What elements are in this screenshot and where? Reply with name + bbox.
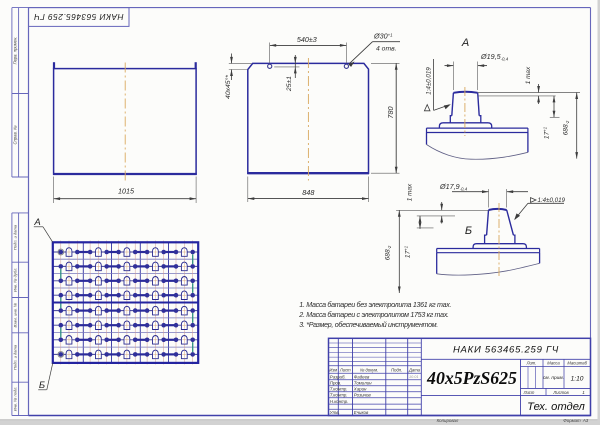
svg-text:А: А [461, 37, 469, 49]
svg-text:Взам. инв. №: Взам. инв. № [13, 302, 18, 327]
svg-text:Харин: Харин [353, 387, 367, 392]
svg-text:см. прим.: см. прим. [543, 376, 564, 381]
svg-text:1: 1 [582, 390, 585, 395]
svg-text:40х45°*: 40х45°* [224, 75, 232, 99]
svg-text:Подп.: Подп. [391, 368, 402, 373]
svg-text:Лист: Лист [523, 390, 535, 395]
svg-text:Изм: Изм [329, 368, 337, 373]
svg-text:Т.контр.: Т.контр. [330, 393, 348, 398]
svg-text:Лит.: Лит. [526, 361, 537, 366]
svg-text:3. *Размер, обеспечиваемый инс: 3. *Размер, обеспечиваемый инструментом. [299, 321, 438, 329]
svg-text:Перв. примен.: Перв. примен. [13, 37, 18, 65]
svg-text:848: 848 [302, 188, 315, 197]
svg-text:1015: 1015 [118, 187, 135, 196]
svg-text:Утв.: Утв. [330, 410, 340, 415]
svg-text:Фадеев: Фадеев [354, 374, 370, 379]
svg-text:Н.контр.: Н.контр. [330, 399, 349, 404]
svg-text:540±3: 540±3 [297, 35, 317, 44]
svg-text:Подп. и дата: Подп. и дата [13, 224, 18, 250]
svg-text:Тех. отдел: Тех. отдел [527, 401, 585, 413]
svg-text:1 max: 1 max [407, 183, 414, 201]
svg-text:Подп. и дата: Подп. и дата [13, 344, 18, 370]
svg-text:НАКИ 563465.259 ГЧ: НАКИ 563465.259 ГЧ [453, 344, 559, 355]
svg-text:1:4±0,019: 1:4±0,019 [538, 197, 566, 204]
svg-text:№ докум.: № докум. [360, 368, 378, 373]
svg-text:Дата: Дата [408, 368, 421, 373]
svg-text:А: А [33, 217, 40, 228]
svg-text:1:4±0,019: 1:4±0,019 [426, 67, 433, 95]
svg-text:Томилин: Томилин [354, 381, 372, 386]
svg-text:2. Масса батареи с электролито: 2. Масса батареи с электролитом 1753 кг … [298, 311, 449, 319]
svg-text:Т.контр.: Т.контр. [330, 387, 348, 392]
svg-text:Инв. № дубл.: Инв. № дубл. [13, 268, 18, 293]
svg-text:Листов: Листов [552, 390, 569, 395]
svg-text:Б: Б [465, 225, 472, 237]
svg-text:Инв. № подл.: Инв. № подл. [13, 386, 18, 411]
svg-text:А3: А3 [582, 418, 589, 423]
svg-text:НАКИ 563465.259 ГЧ: НАКИ 563465.259 ГЧ [34, 12, 124, 22]
svg-text:Пров.: Пров. [330, 381, 342, 386]
svg-text:4 отв.: 4 отв. [376, 45, 397, 52]
svg-text:1:10: 1:10 [571, 376, 584, 383]
svg-text:1. Масса батареи без электроли: 1. Масса батареи без электролита 1361 кг… [299, 301, 451, 309]
svg-text:Копировал: Копировал [437, 418, 459, 423]
svg-text:Масса: Масса [547, 361, 560, 366]
svg-text:40x5PzS625: 40x5PzS625 [426, 368, 517, 388]
svg-text:Справ. №: Справ. № [13, 125, 18, 144]
svg-text:25±1: 25±1 [286, 76, 293, 92]
svg-text:Разраб.: Разраб. [330, 374, 346, 379]
svg-text:Масштаб: Масштаб [567, 361, 587, 366]
svg-text:Розинов: Розинов [354, 393, 372, 398]
svg-text:10.01: 10.01 [409, 375, 419, 379]
svg-text:Б: Б [39, 380, 45, 391]
svg-text:Лист: Лист [339, 368, 351, 373]
svg-text:Формат: Формат [563, 418, 581, 423]
svg-text:1 max: 1 max [525, 66, 532, 84]
svg-text:Ечиков: Ечиков [354, 410, 369, 415]
svg-text:780: 780 [386, 106, 395, 118]
